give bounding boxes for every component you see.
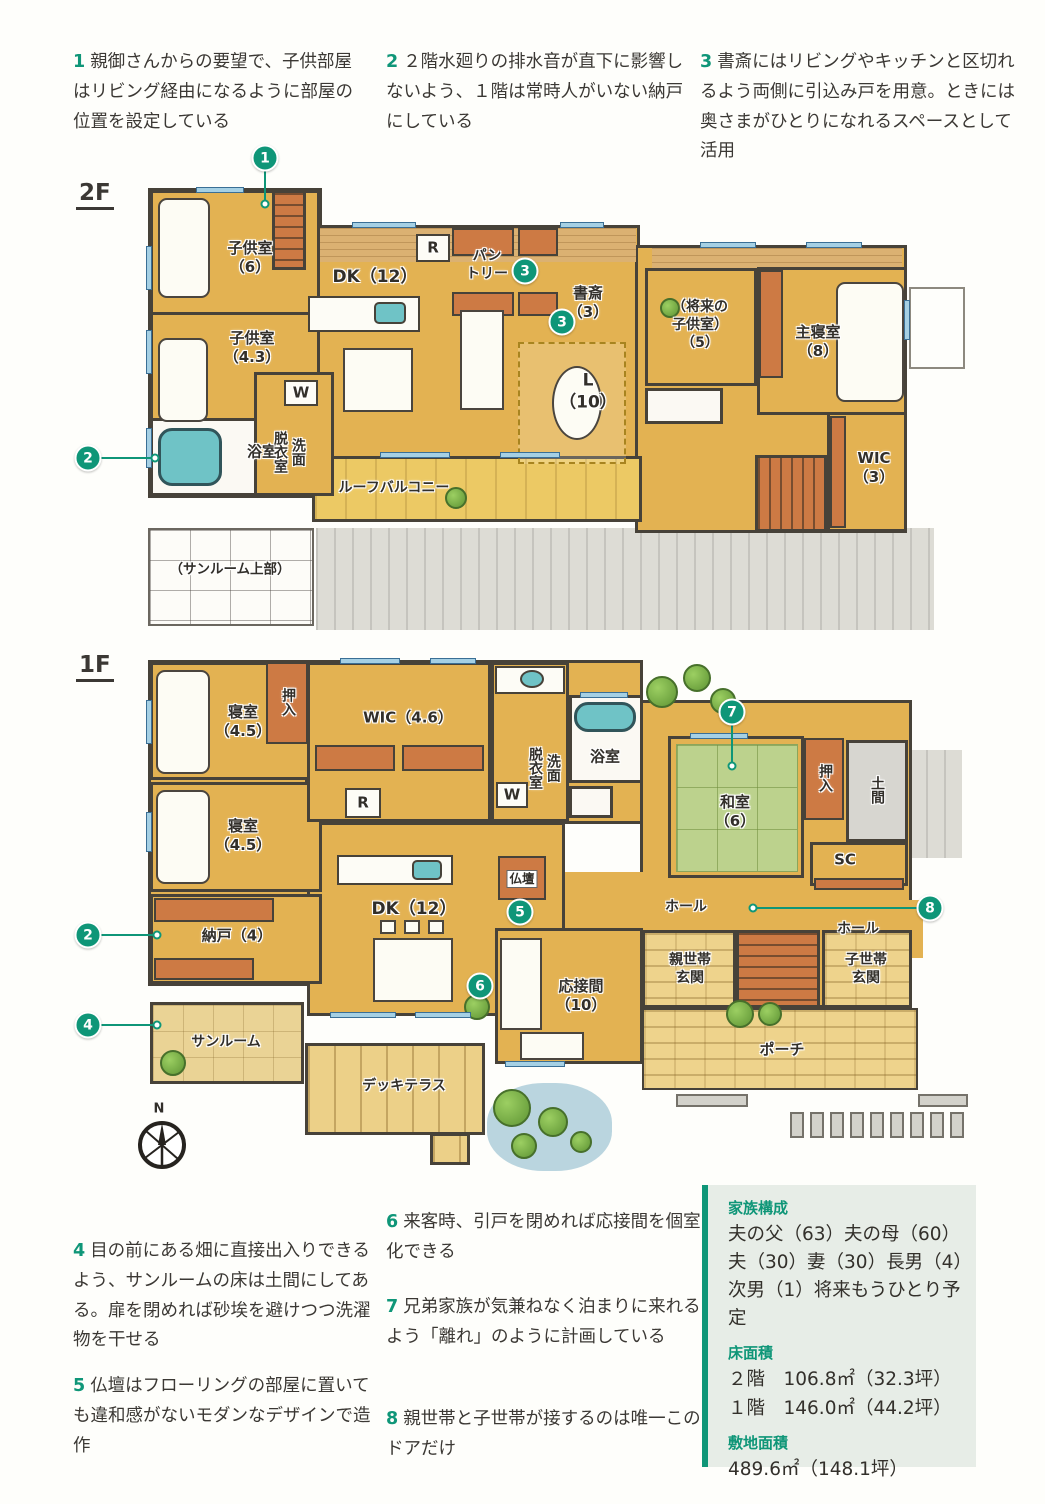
room-1f-sc-label: SC <box>834 850 856 869</box>
annotation-1-text: 親御さんからの要望で、子供部屋はリビング経由になるように部屋の位置を設定している <box>73 52 353 132</box>
window <box>146 246 152 290</box>
butsudan-label: 仏壇 <box>506 870 537 888</box>
window <box>146 812 152 852</box>
window <box>340 658 400 664</box>
marker-8: 8 <box>917 895 944 922</box>
window <box>806 242 862 248</box>
annotation-7-text: 兄弟家族が気兼ねなく泊まりに来れるよう「離れ」のように計画している <box>386 1297 701 1347</box>
marker-2-endpoint <box>151 454 160 463</box>
window <box>430 658 476 664</box>
room-1f-washitsu-label: 和室 （6） <box>715 793 755 831</box>
tree-icon <box>538 1107 568 1137</box>
marker-3b: 3 <box>549 309 576 336</box>
room-1f-oshiire1-label: 押入 <box>278 688 296 716</box>
annotation-8-number: 8 <box>386 1409 398 1429</box>
room-1f-oshiire2-label: 押入 <box>815 764 833 792</box>
info-family-heading: 家族構成 <box>728 1197 968 1218</box>
floor-2f-label: 2F <box>76 180 114 210</box>
hall2-label: ホール <box>837 921 879 939</box>
double-bed-icon <box>836 282 904 402</box>
annotation-6-number: 6 <box>386 1212 398 1232</box>
window <box>505 1061 565 1067</box>
window <box>196 187 244 193</box>
dining-table <box>343 348 413 412</box>
nando-shelf <box>154 898 274 922</box>
annotation-2: 2２階水廻りの排水音が直下に影響しないよう、１階は常時人がいない納戸にしている <box>386 48 688 137</box>
marker-4: 4 <box>75 1012 102 1039</box>
sofa <box>520 1032 584 1060</box>
stepping-stone <box>810 1112 824 1138</box>
compass-n-label: N <box>154 1102 165 1119</box>
annotation-2-text: ２階水廻りの排水音が直下に影響しないよう、１階は常時人がいない納戸にしている <box>386 52 683 132</box>
roof-balcony-label: ルーフバルコニー <box>339 480 450 498</box>
side-balcony-outline <box>909 287 965 369</box>
deck-step <box>430 1133 470 1165</box>
stairs-1f <box>736 930 820 1008</box>
marker-5: 5 <box>507 899 534 926</box>
window <box>500 452 560 458</box>
wic-shelf <box>402 745 484 771</box>
info-family-line1: 夫の父（63）夫の母（60） <box>728 1221 968 1249</box>
annotation-8: 8親世帯と子世帯が接するのは唯一このドアだけ <box>386 1405 706 1465</box>
room-1f-washer-label: W <box>504 785 521 804</box>
annotation-8-text: 親世帯と子世帯が接するのは唯一このドアだけ <box>386 1409 701 1459</box>
marker-2-1f-leader <box>101 934 153 936</box>
stepping-stone <box>950 1112 964 1138</box>
bathtub-icon <box>574 702 636 732</box>
stepping-stone <box>910 1112 924 1138</box>
marker-7-leader <box>731 725 733 763</box>
window <box>146 330 152 374</box>
hall1-label: ホール <box>665 899 707 917</box>
stepping-stone <box>830 1112 844 1138</box>
marker-8-leader <box>757 907 917 909</box>
porch-label: ポーチ <box>759 1040 804 1059</box>
master-closet <box>759 270 783 378</box>
room-1f-bed2-label: 寝室 （4.5） <box>215 817 272 855</box>
window <box>146 428 152 468</box>
marker-2-1f: 2 <box>75 922 102 949</box>
marker-4-leader <box>101 1024 153 1026</box>
chair <box>404 920 420 934</box>
sunroom-label: サンルーム <box>191 1034 261 1052</box>
info-sitearea-heading: 敷地面積 <box>728 1432 968 1453</box>
chair <box>428 920 444 934</box>
room-2f-toilet <box>645 388 723 424</box>
tree-icon <box>683 664 711 692</box>
room-1f-bath-label: 浴室 <box>590 747 620 766</box>
room-1f-wic <box>307 662 491 822</box>
marker-4-endpoint <box>153 1021 162 1030</box>
marker-2-leader <box>101 457 151 459</box>
marker-7-endpoint <box>728 762 737 771</box>
stepping-stone <box>870 1112 884 1138</box>
kitchen-sink <box>374 302 406 324</box>
room-1f-doma-label: 土間 <box>867 776 885 804</box>
annotation-3: 3書斎にはリビングやキッチンと区切れるよう両側に引込み戸を用意。ときには奥さまが… <box>700 48 1024 167</box>
window <box>352 222 416 228</box>
marker-3a: 3 <box>512 258 539 285</box>
plant-icon <box>726 1000 754 1028</box>
window <box>380 452 450 458</box>
annotation-1-number: 1 <box>73 52 85 72</box>
window <box>560 222 604 228</box>
tree-icon <box>570 1131 592 1153</box>
marker-1-endpoint <box>261 200 270 209</box>
room-2f-future-kids-label: （将来の 子供室） （5） <box>672 299 728 353</box>
plant-icon <box>160 1050 186 1076</box>
annotation-6: 6来客時、引戸を閉めれば応接間を個室化できる <box>386 1208 702 1268</box>
stepping-slab <box>918 1094 968 1107</box>
room-1f-bed1-label: 寝室 （4.5） <box>215 703 272 741</box>
stepping-stone <box>790 1112 804 1138</box>
property-info-box: 家族構成 夫の父（63）夫の母（60） 夫（30）妻（30）長男（4） 次男（1… <box>702 1185 976 1467</box>
room-1f-dk-label: DK（12） <box>372 899 457 921</box>
annotation-7: 7兄弟家族が気兼ねなく泊まりに来れるよう「離れ」のように計画している <box>386 1293 706 1353</box>
room-1f-wic-label: WIC（4.6） <box>363 708 453 727</box>
pantry-shelf <box>518 228 558 256</box>
bed-icon <box>158 198 210 298</box>
annotation-2-number: 2 <box>386 52 398 72</box>
annotation-4-number: 4 <box>73 1241 85 1261</box>
room-2f-kids43-label: 子供室 （4.3） <box>224 329 281 367</box>
entry-steps <box>908 750 962 858</box>
tree-icon <box>646 676 678 708</box>
window <box>580 692 628 698</box>
room-1f-laundry-label: 洗面 脱衣室 <box>525 747 561 789</box>
annotation-5: 5仏壇はフローリングの部屋に置いても違和感がないモダンなデザインで造作 <box>73 1372 375 1461</box>
parents-entrance-label: 親世帯 玄関 <box>669 952 711 988</box>
sc-shelf <box>814 878 904 890</box>
room-2f-laundry-label: 洗面 脱衣室 <box>270 431 306 473</box>
bed-icon <box>158 338 208 422</box>
window <box>146 700 152 744</box>
marker-1: 1 <box>252 145 279 172</box>
tree-icon <box>493 1089 531 1127</box>
children-entrance-label: 子世帯 玄関 <box>845 952 887 988</box>
annotation-5-number: 5 <box>73 1376 85 1396</box>
marker-7: 7 <box>719 699 746 726</box>
room-2f-kids6-label: 子供室 （6） <box>227 239 272 277</box>
bathtub-icon <box>158 428 222 486</box>
annotation-7-number: 7 <box>386 1297 398 1317</box>
window <box>700 242 756 248</box>
plant-icon <box>758 1002 782 1026</box>
annotation-4-text: 目の前にある畑に直接出入りできるよう、サンルームの床は土間にしてある。扉を閉めれ… <box>73 1241 371 1350</box>
info-floorarea-line1: ２階 106.8㎡（32.3坪） <box>728 1366 968 1394</box>
room-1f-toilet <box>569 786 613 818</box>
deck-terrace-label: デッキテラス <box>362 1078 446 1096</box>
marker-2-1f-endpoint <box>153 931 162 940</box>
info-family-line3: 次男（1）将来もうひとり予定 <box>728 1277 968 1333</box>
compass: N <box>137 1100 189 1190</box>
annotation-1: 1親御さんからの要望で、子供部屋はリビング経由になるように部屋の位置を設定してい… <box>73 48 367 137</box>
annotation-3-number: 3 <box>700 52 712 72</box>
window <box>415 1012 471 1018</box>
window <box>904 300 910 340</box>
marker-6: 6 <box>467 973 494 1000</box>
tree-icon <box>511 1133 537 1159</box>
stairs-2f-main <box>755 455 827 532</box>
stepping-stone <box>850 1112 864 1138</box>
stairs-2f <box>272 190 306 270</box>
room-2f-refrigerator-label: R <box>427 238 439 257</box>
nando-shelf <box>154 958 254 980</box>
sink-icon <box>520 670 544 688</box>
bed-icon <box>156 790 210 884</box>
annotation-4: 4目の前にある畑に直接出入りできるよう、サンルームの床は土間にしてある。扉を閉め… <box>73 1237 375 1356</box>
compass-rose-icon <box>137 1120 187 1170</box>
marker-1-leader <box>264 171 266 202</box>
info-floorarea-line2: １階 146.0㎡（44.2坪） <box>728 1395 968 1423</box>
stepping-stone <box>930 1112 944 1138</box>
window <box>690 733 748 739</box>
dining-table <box>373 938 453 1002</box>
room-2f-wic-label: WIC （3） <box>854 449 894 487</box>
2f-ground-shading <box>316 528 934 630</box>
sofa <box>500 938 542 1030</box>
marker-2-2f: 2 <box>75 445 102 472</box>
info-family-line2: 夫（30）妻（30）長男（4） <box>728 1249 968 1277</box>
floor-1f-label: 1F <box>76 652 114 682</box>
annotation-5-text: 仏壇はフローリングの部屋に置いても違和感がないモダンなデザインで造作 <box>73 1376 371 1456</box>
drawing-room-label: 応接間 （10） <box>556 977 607 1015</box>
room-1f-nando-label: 納戸（4） <box>202 926 272 945</box>
stepping-slab <box>676 1094 748 1107</box>
magazine-floorplan-page: 1親御さんからの要望で、子供部屋はリビング経由になるように部屋の位置を設定してい… <box>0 0 1045 1504</box>
wic-shelf <box>830 416 846 528</box>
sofa <box>460 310 504 410</box>
annotation-3-text: 書斎にはリビングやキッチンと区切れるよう両側に引込み戸を用意。ときには奥さまがひ… <box>700 52 1015 161</box>
room-1f-refrigerator-label: R <box>357 793 369 812</box>
room-2f-dk-label: DK（12） <box>333 267 418 289</box>
room-2f-pantry-label: パン トリー <box>466 248 508 284</box>
stepping-stone <box>890 1112 904 1138</box>
chair <box>380 920 396 934</box>
info-floorarea-heading: 床面積 <box>728 1342 968 1363</box>
bed-icon <box>156 670 210 774</box>
room-2f-living-label: L （10） <box>559 370 617 414</box>
window <box>330 1012 396 1018</box>
marker-8-endpoint <box>749 904 758 913</box>
sunroom-upper-label: （サンルーム上部） <box>169 561 290 578</box>
kitchen-sink <box>412 860 442 880</box>
info-sitearea-line1: 489.6㎡（148.1坪） <box>728 1456 968 1484</box>
wic-shelf <box>315 745 395 771</box>
room-2f-washer-label: W <box>293 383 310 402</box>
annotation-6-text: 来客時、引戸を閉めれば応接間を個室化できる <box>386 1212 701 1262</box>
room-2f-master-label: 主寝室 （8） <box>795 323 840 361</box>
